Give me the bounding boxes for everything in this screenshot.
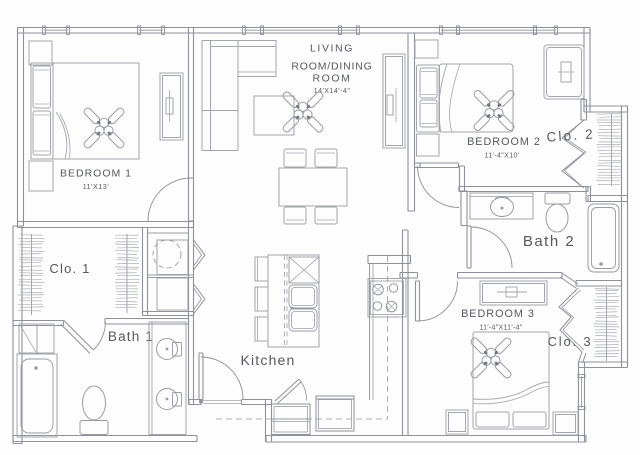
svg-text:ROOM: ROOM xyxy=(312,73,351,85)
svg-text:11'-4"X11'-4": 11'-4"X11'-4" xyxy=(479,325,522,332)
svg-text:LIVING: LIVING xyxy=(310,43,354,55)
svg-text:Kitchen: Kitchen xyxy=(240,352,295,368)
svg-text:BEDROOM 3: BEDROOM 3 xyxy=(461,308,535,320)
svg-text:Clo. 1: Clo. 1 xyxy=(49,261,90,276)
svg-text:11'X13': 11'X13' xyxy=(83,184,110,191)
svg-text:11'-4"X10': 11'-4"X10' xyxy=(484,153,519,160)
svg-text:Bath 1: Bath 1 xyxy=(108,329,154,344)
svg-text:ROOM/DINING: ROOM/DINING xyxy=(291,61,372,73)
svg-text:BEDROOM 1: BEDROOM 1 xyxy=(60,168,132,180)
svg-text:Bath 2: Bath 2 xyxy=(523,233,575,250)
svg-text:BEDROOM 2: BEDROOM 2 xyxy=(467,136,541,148)
svg-text:Clo. 3: Clo. 3 xyxy=(548,334,593,349)
